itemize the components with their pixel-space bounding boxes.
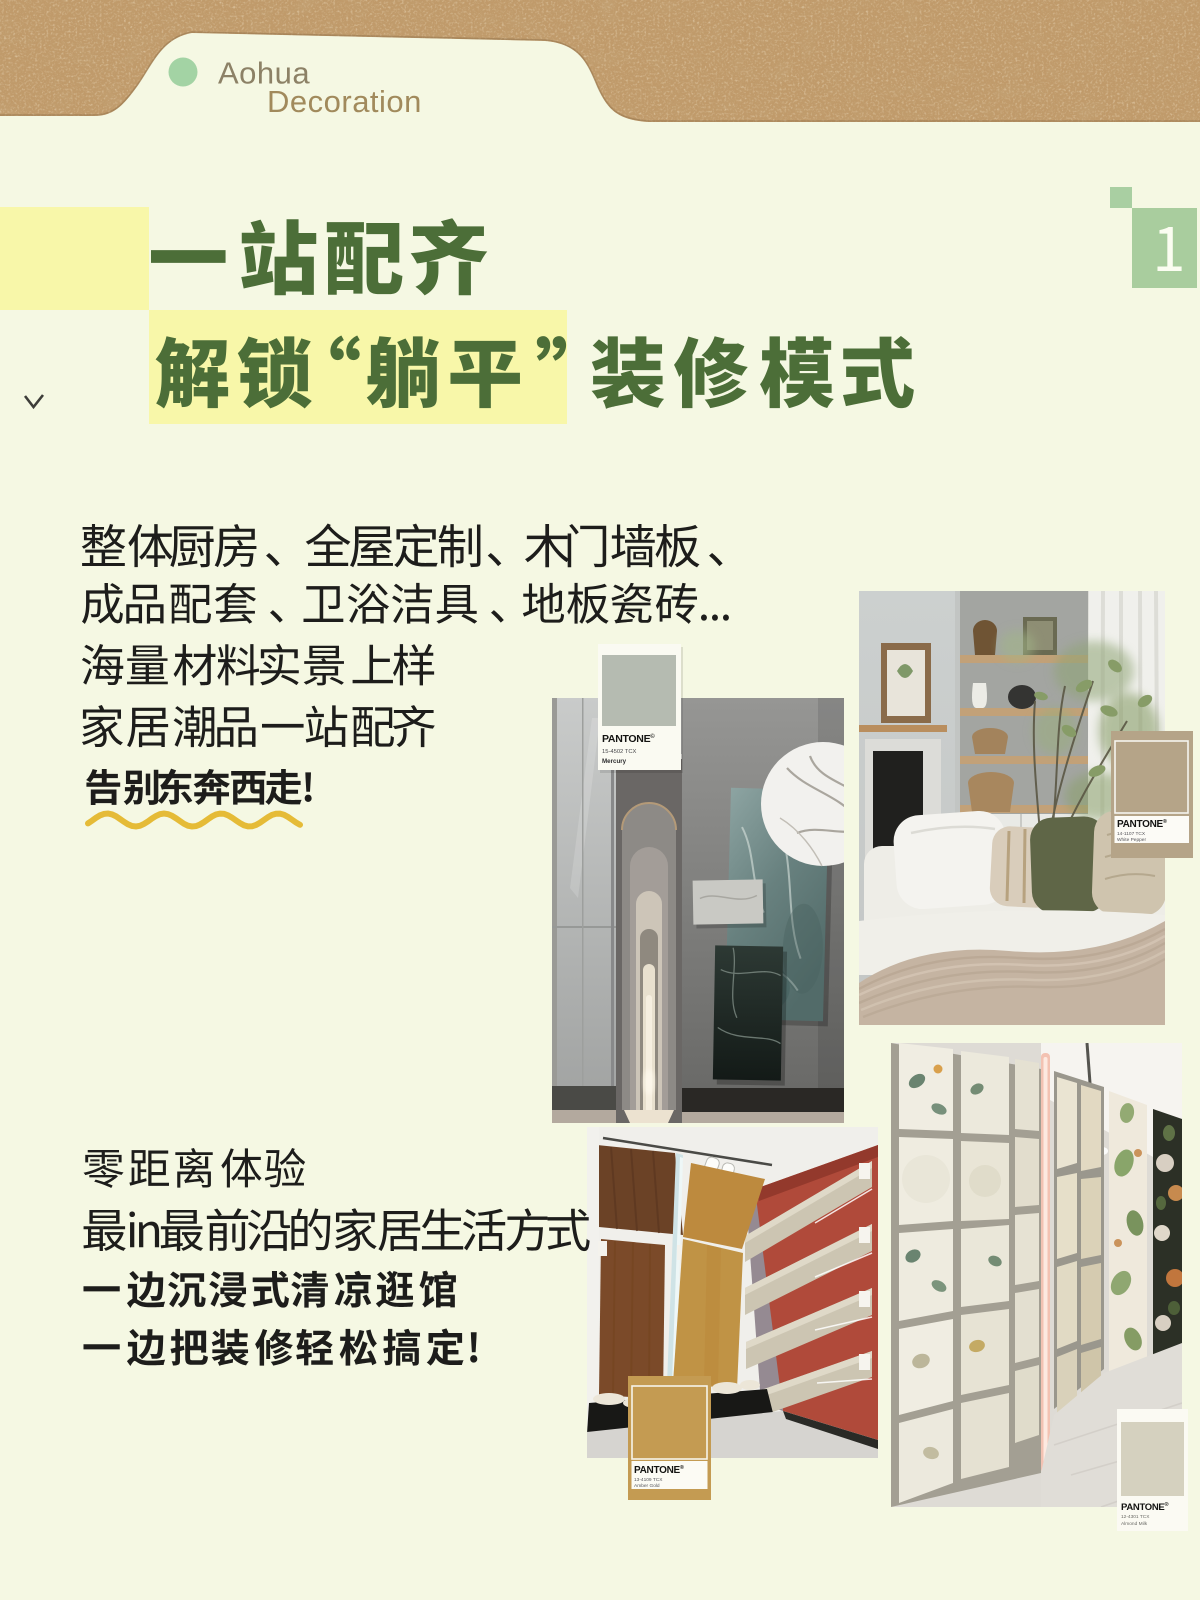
svg-text:PANTONE®: PANTONE® — [1121, 1501, 1168, 1513]
svg-text:PANTONE®: PANTONE® — [634, 1464, 684, 1476]
svg-text:13-4109 TCX: 13-4109 TCX — [634, 1477, 663, 1483]
svg-text:PANTONE®: PANTONE® — [1117, 818, 1167, 830]
svg-text:14-1107 TCX: 14-1107 TCX — [1117, 831, 1146, 837]
svg-text:PANTONE©: PANTONE© — [602, 733, 655, 745]
svg-text:White Pepper: White Pepper — [1117, 837, 1146, 843]
svg-text:Decoration: Decoration — [267, 84, 422, 119]
svg-text:Amber Gold: Amber Gold — [634, 1483, 660, 1489]
svg-text:12-4301 TCX: 12-4301 TCX — [1121, 1514, 1150, 1520]
svg-text:Almond Milk: Almond Milk — [1121, 1521, 1148, 1527]
svg-text:15-4502 TCX: 15-4502 TCX — [602, 749, 637, 755]
svg-text:Mercury: Mercury — [602, 758, 627, 765]
